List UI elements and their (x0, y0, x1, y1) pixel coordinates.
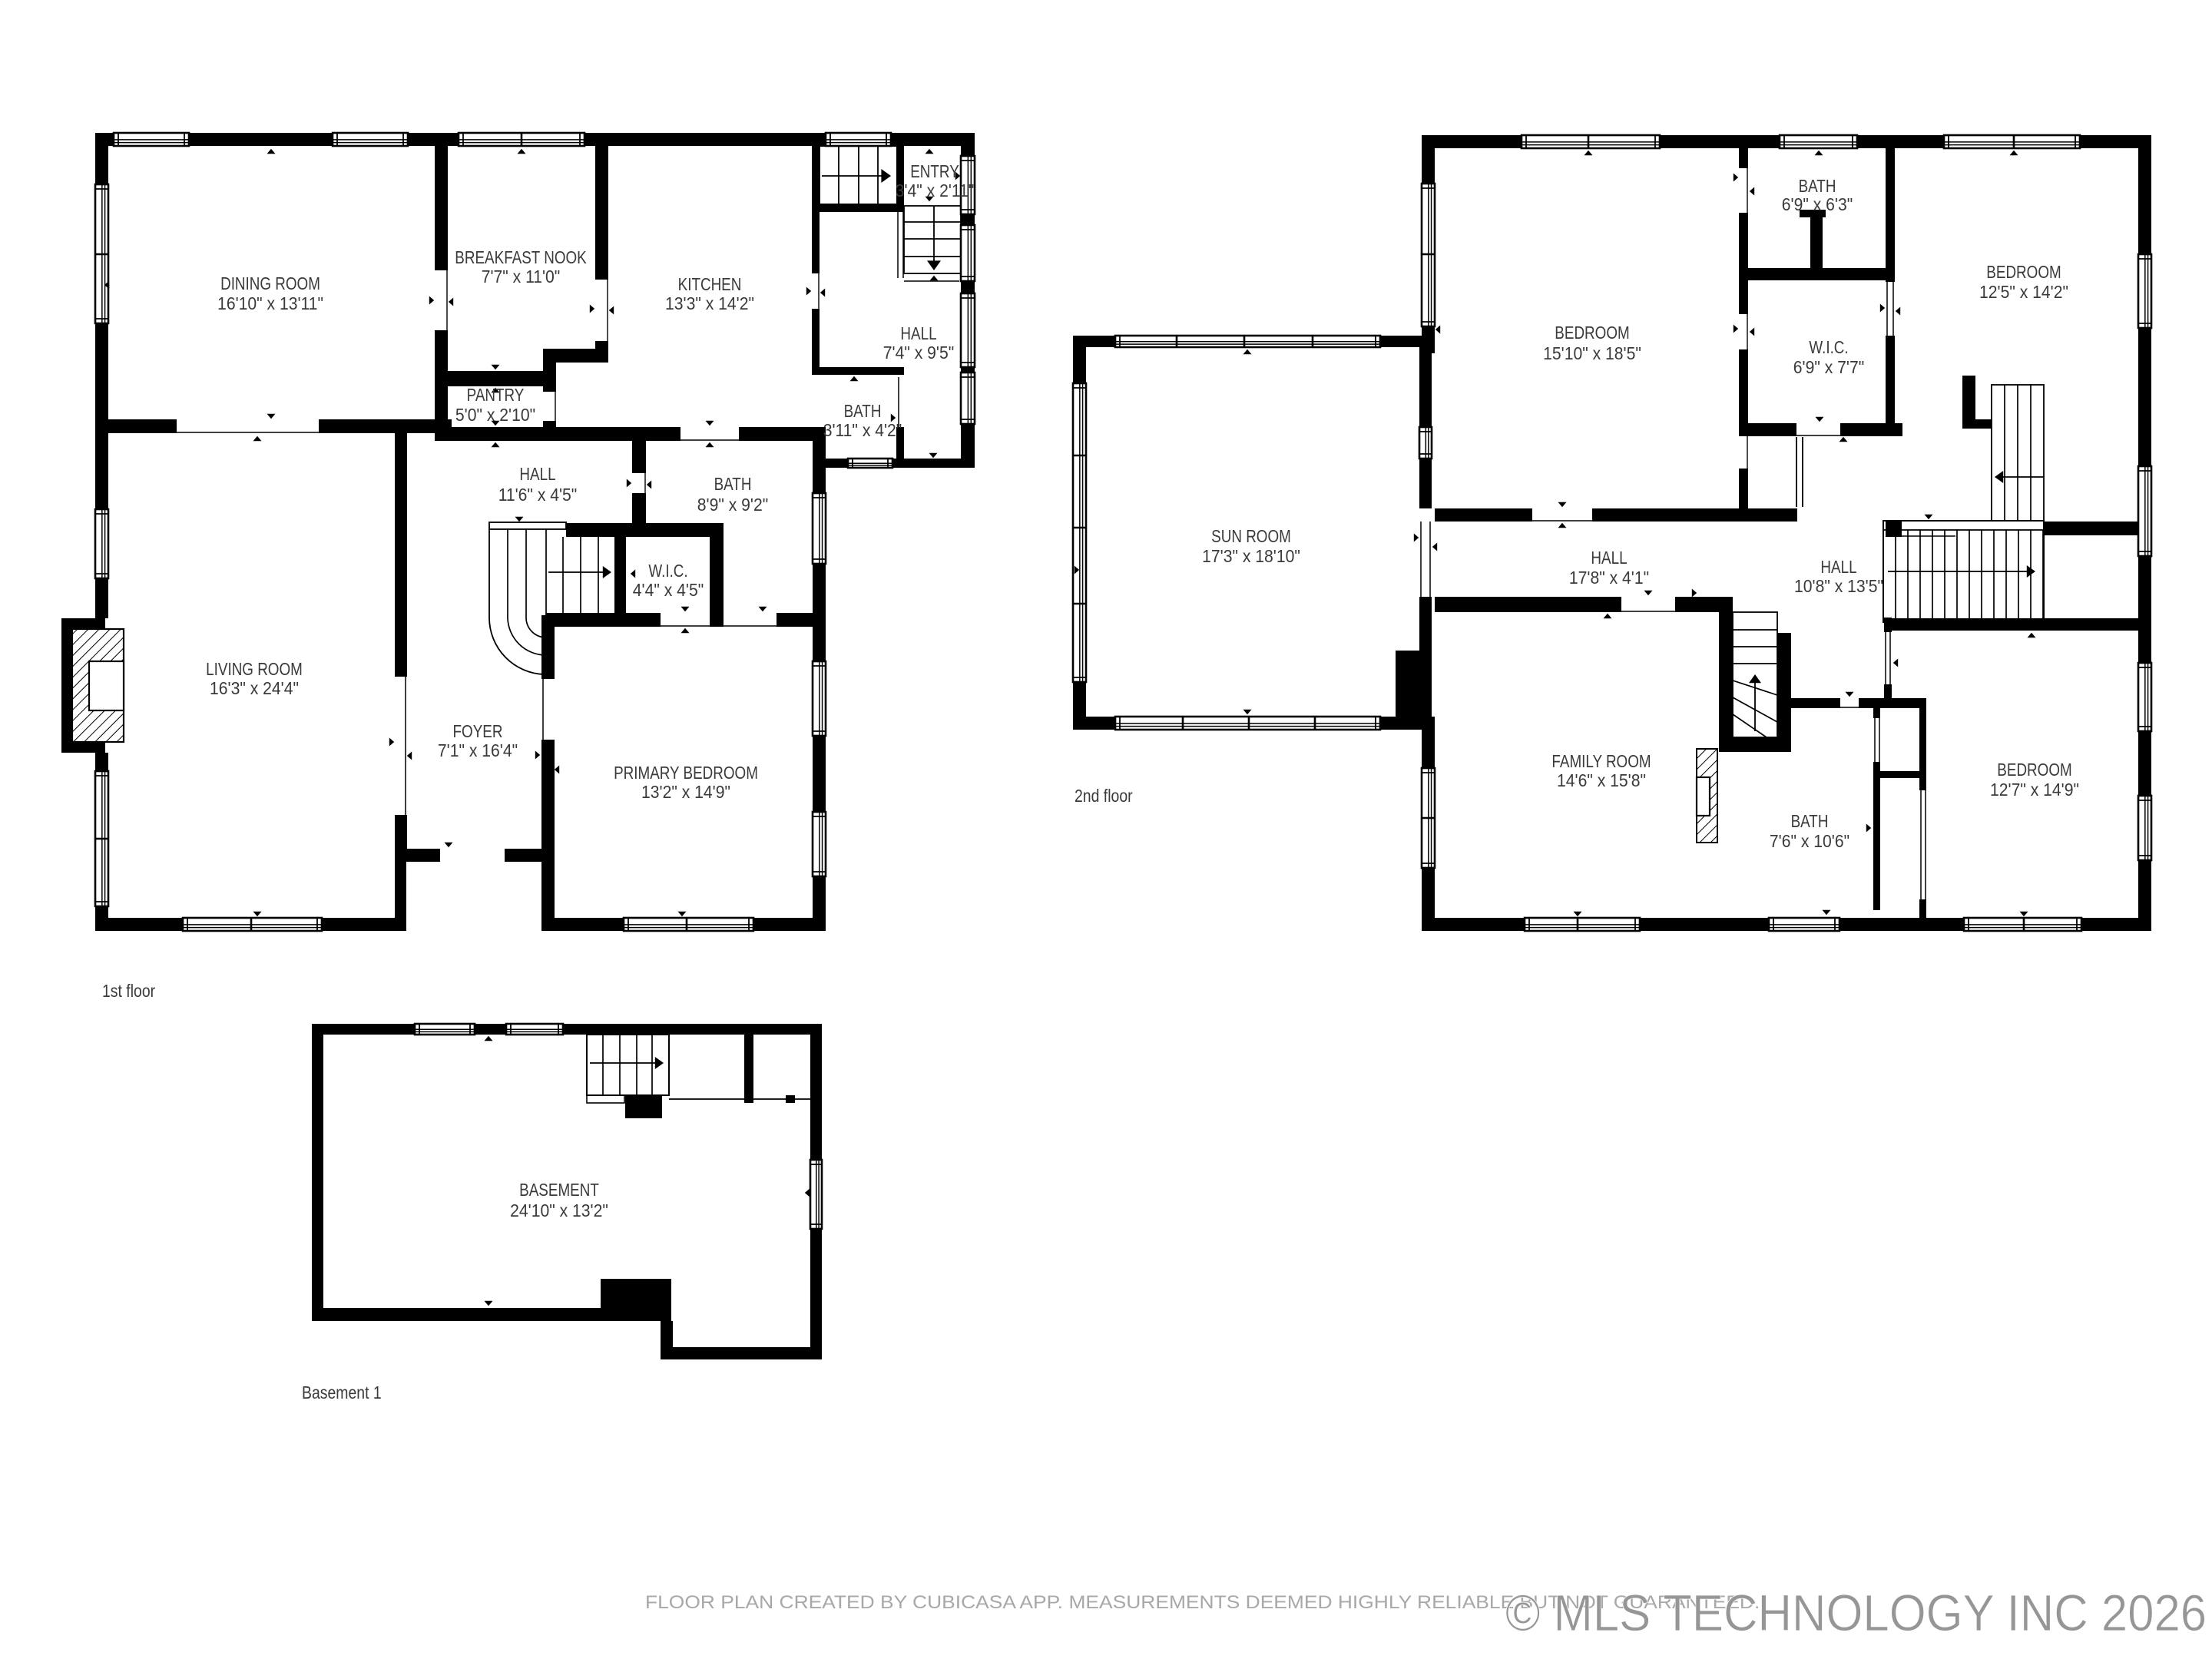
svg-text:12'5" x 14'2": 12'5" x 14'2" (1979, 282, 2068, 302)
svg-text:17'3" x 18'10": 17'3" x 18'10" (1202, 546, 1300, 566)
svg-text:6'9" x 6'3": 6'9" x 6'3" (1782, 194, 1853, 214)
svg-text:KITCHEN: KITCHEN (678, 275, 742, 294)
svg-text:HALL: HALL (519, 465, 555, 484)
svg-text:FOYER: FOYER (453, 722, 503, 741)
svg-text:10'8" x 13'5": 10'8" x 13'5" (1794, 576, 1883, 596)
svg-text:8'9" x 9'2": 8'9" x 9'2" (697, 495, 768, 515)
svg-text:LIVING ROOM: LIVING ROOM (206, 660, 303, 679)
svg-text:FAMILY ROOM: FAMILY ROOM (1551, 752, 1651, 771)
svg-text:7'1" x 16'4": 7'1" x 16'4" (438, 740, 518, 760)
svg-text:BEDROOM: BEDROOM (1555, 323, 1629, 343)
svg-text:24'10" x 13'2": 24'10" x 13'2" (510, 1200, 608, 1220)
svg-text:BATH: BATH (844, 402, 882, 421)
svg-text:5'0" x 2'10": 5'0" x 2'10" (455, 405, 535, 425)
svg-text:3'11" x 4'2": 3'11" x 4'2" (823, 420, 902, 440)
svg-text:11'6" x 4'5": 11'6" x 4'5" (498, 485, 578, 505)
svg-text:BEDROOM: BEDROOM (1986, 263, 2061, 282)
svg-text:BATH: BATH (714, 475, 752, 494)
svg-text:7'4" x 9'5": 7'4" x 9'5" (883, 343, 954, 363)
svg-text:ENTRY: ENTRY (910, 162, 959, 181)
svg-text:1st floor: 1st floor (102, 981, 155, 1001)
svg-text:DINING ROOM: DINING ROOM (220, 274, 320, 293)
svg-text:15'10" x 18'5": 15'10" x 18'5" (1543, 343, 1641, 363)
svg-text:2nd floor: 2nd floor (1075, 786, 1133, 806)
svg-text:HALL: HALL (1820, 558, 1856, 577)
svg-text:BATH: BATH (1799, 177, 1836, 196)
svg-text:PRIMARY BEDROOM: PRIMARY BEDROOM (614, 763, 758, 783)
svg-text:BEDROOM: BEDROOM (1997, 760, 2071, 780)
svg-text:14'6" x 15'8": 14'6" x 15'8" (1557, 770, 1646, 790)
svg-text:17'8" x 4'1": 17'8" x 4'1" (1569, 568, 1649, 588)
svg-text:4'4" x 4'5": 4'4" x 4'5" (633, 580, 704, 600)
svg-text:3'4" x 2'11": 3'4" x 2'11" (896, 180, 975, 200)
svg-text:BASEMENT: BASEMENT (519, 1181, 599, 1200)
svg-text:HALL: HALL (900, 324, 936, 343)
svg-text:© MLS TECHNOLOGY INC 2026: © MLS TECHNOLOGY INC 2026 (1505, 1584, 2207, 1642)
svg-text:HALL: HALL (1591, 548, 1627, 568)
svg-text:W.I.C.: W.I.C. (648, 561, 687, 581)
svg-text:Basement 1: Basement 1 (302, 1382, 382, 1402)
svg-text:16'10" x 13'11": 16'10" x 13'11" (217, 293, 323, 313)
svg-text:7'7" x 11'0": 7'7" x 11'0" (482, 267, 561, 286)
svg-text:SUN ROOM: SUN ROOM (1211, 527, 1291, 546)
svg-text:16'3" x 24'4": 16'3" x 24'4" (210, 678, 299, 698)
svg-text:BREAKFAST NOOK: BREAKFAST NOOK (455, 248, 586, 267)
svg-text:BATH: BATH (1791, 812, 1829, 831)
svg-text:PANTRY: PANTRY (467, 386, 525, 405)
svg-text:W.I.C.: W.I.C. (1809, 338, 1848, 357)
svg-text:13'2" x 14'9": 13'2" x 14'9" (641, 782, 730, 802)
svg-text:13'3" x 14'2": 13'3" x 14'2" (665, 293, 754, 313)
svg-text:6'9" x 7'7": 6'9" x 7'7" (1793, 357, 1864, 377)
svg-text:7'6" x 10'6": 7'6" x 10'6" (1770, 831, 1849, 851)
svg-text:12'7" x 14'9": 12'7" x 14'9" (1990, 780, 2079, 800)
